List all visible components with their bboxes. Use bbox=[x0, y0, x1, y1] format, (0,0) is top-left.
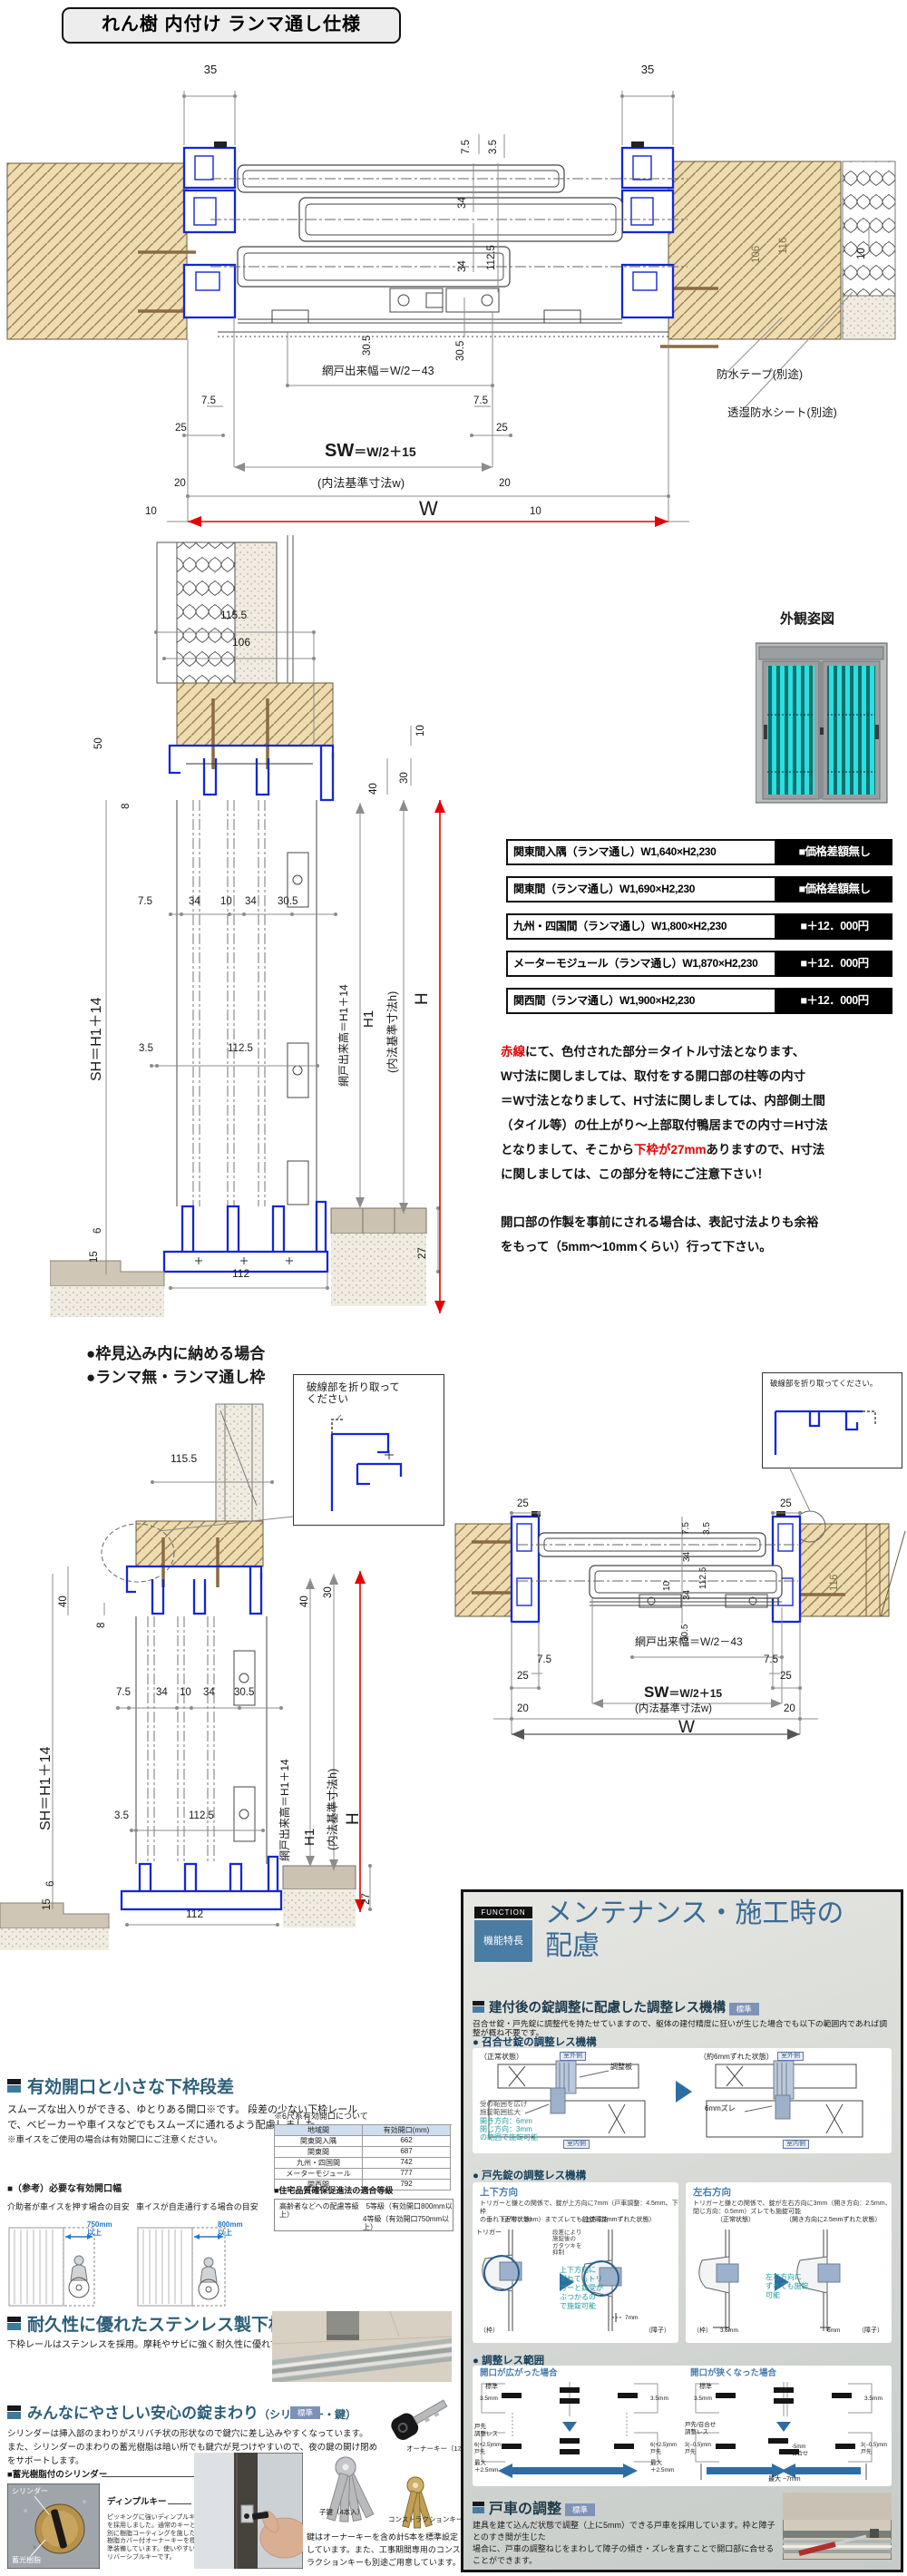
price-value: ■価格差額無し bbox=[776, 839, 892, 865]
sw-eq-label: ＝W/2＋15 bbox=[354, 444, 415, 459]
latch-horizontal-box: 左右方向 トリガーと鎌との関係で、錠が左右方向に3mm（開き方向：2.5mm、 … bbox=[686, 2182, 892, 2343]
teal-note: 上下方向に ずれてもトリ ガーと錠受が ぶつかるの で施錠可能 bbox=[560, 2266, 603, 2311]
dim-label: 7.5 bbox=[461, 140, 473, 154]
col-header: 地域間 bbox=[275, 2125, 363, 2136]
dim-label: 7.5 bbox=[537, 1654, 551, 1666]
owner-key-photo bbox=[388, 2391, 453, 2444]
dim-label: 10 bbox=[180, 1687, 191, 1699]
arrow-label: 800mm 以上 bbox=[218, 2220, 243, 2237]
dim-label: 10 bbox=[856, 248, 868, 259]
dim-label: 網戸出来幅＝W/2－43 bbox=[635, 1636, 743, 1649]
dim-label: SW＝W/2＋15 bbox=[325, 441, 416, 462]
case-title: 開口が広がった場合 bbox=[480, 2369, 558, 2379]
table-row: 関西間（ランマ通し）W1,900×H2,230■＋12．000円 bbox=[506, 988, 892, 1014]
zure-label: 6mmズレ bbox=[705, 2104, 736, 2113]
max-label: 最大 ＋2.5mm bbox=[474, 2460, 498, 2474]
dim-label: -5mm 召合せ bbox=[792, 2444, 808, 2458]
table-row: 九州・四国間742 bbox=[275, 2158, 452, 2169]
note-text: にて、色付された部分＝タイトル寸法となります、 bbox=[525, 1045, 805, 1059]
dim-label: 3.5 bbox=[488, 140, 500, 154]
dim-label: H1 bbox=[361, 1010, 376, 1028]
dim-label: 34 bbox=[682, 1552, 693, 1562]
std-label: 標準 bbox=[485, 2384, 498, 2391]
dim-label: 40 bbox=[299, 1595, 311, 1607]
dim-label: 115.5 bbox=[171, 1453, 197, 1466]
mid-vertical-section-drawing bbox=[0, 1361, 453, 1950]
dim-label: 112.5 bbox=[698, 1567, 709, 1589]
dim-label: 34 bbox=[682, 1590, 693, 1600]
dim-label: 25 bbox=[780, 1671, 792, 1683]
dim-label: 10 bbox=[415, 725, 427, 737]
section-icon bbox=[7, 2079, 21, 2093]
size-label: 九州・四国間（ランマ通し）W1,800×H2,230 bbox=[506, 913, 776, 940]
note-text: に関しましては、この部分を特にご注意下さい！ bbox=[501, 1167, 769, 1181]
dim-label: 27 bbox=[361, 1893, 373, 1905]
dim-label: 20 bbox=[784, 1703, 795, 1715]
notes-paragraph-1: 赤線にて、色付された部分＝タイトル寸法となります、 W寸法に関しましては、取付を… bbox=[501, 1039, 904, 1186]
dim-label: 7.5 bbox=[138, 896, 152, 908]
dim-label: 10 bbox=[220, 896, 232, 908]
dimple-key-label: ディンプルキー bbox=[107, 2498, 167, 2508]
dim-label: 34 bbox=[203, 1687, 215, 1699]
adjust-range-box: 開口が広がった場合 開口が狭くなった場合 bbox=[473, 2366, 892, 2486]
dim-label: 3.5 bbox=[702, 1522, 713, 1535]
section-icon bbox=[7, 2317, 21, 2330]
indoor-badge: 室内側 bbox=[783, 2140, 809, 2149]
dim-label: SH＝H1＋14 bbox=[89, 998, 105, 1081]
state-label: （開き方向に2.5mmずれた状態） bbox=[785, 2217, 881, 2224]
table-header-row: 地域間有効開口(mm) bbox=[275, 2125, 452, 2136]
dim-label: 3.5 bbox=[114, 1810, 129, 1822]
dim-label: 7mm bbox=[625, 2315, 638, 2321]
cylinder-sub-heading: ■蓄光樹脂付のシリンダー bbox=[7, 2471, 107, 2481]
direction-body: トリガーと鎌との関係で、錠が左右方向に3mm（開き方向：2.5mm、 閉じ方向：… bbox=[693, 2200, 892, 2217]
dim-label: SH＝H1＋14 bbox=[38, 1747, 54, 1830]
dim-label: 40 bbox=[368, 783, 380, 795]
vertical-section-drawing bbox=[50, 535, 467, 1351]
range-label: 戸先 調整レス bbox=[474, 2424, 498, 2438]
dim-label: 7.5 bbox=[116, 1687, 131, 1699]
leader-line bbox=[168, 2503, 191, 2504]
title-text: 建付後の錠調整に配慮した調整レス機構 bbox=[489, 2001, 726, 2015]
dim-label: 6(+2.5)mm 戸先 bbox=[650, 2442, 677, 2456]
size-label: メーターモジュール（ランマ通し）W1,870×H2,230 bbox=[506, 951, 776, 977]
dim-label: 25 bbox=[517, 1671, 529, 1683]
dim-label: 30.5 bbox=[278, 896, 297, 908]
dim-label: 3.5mm bbox=[694, 2395, 712, 2402]
annotation-waterproof-tape: 防水テープ(別途) bbox=[717, 368, 803, 381]
dim-label: 網戸出来高＝H1＋14 bbox=[279, 1759, 292, 1861]
dim-label: 6mm bbox=[827, 2327, 840, 2334]
dim-label: 10 bbox=[530, 506, 541, 518]
dim-label: 116 bbox=[829, 1575, 841, 1591]
price-value: ■＋12．000円 bbox=[776, 913, 892, 940]
state-label: （正常状態） bbox=[717, 2217, 755, 2224]
note-text: となりまして、そこから bbox=[501, 1143, 634, 1156]
dim-label: 10 bbox=[145, 506, 157, 518]
red-text: 赤線 bbox=[501, 1045, 525, 1059]
dim-label: 15 bbox=[42, 1898, 54, 1910]
section-title-opening: 有効開口と小さな下枠段差 bbox=[27, 2073, 234, 2098]
indoor-badge: 室内側 bbox=[563, 2140, 590, 2149]
meeting-lock-box: （正常状態） 室外側 調整板 受の範囲を広げ 施錠範囲拡大 開き方向：6mm 閉… bbox=[473, 2048, 892, 2153]
cell: 687 bbox=[363, 2147, 451, 2158]
dim-label: 40 bbox=[58, 1595, 70, 1607]
dim-label: 3.5mm bbox=[650, 2395, 668, 2402]
dimension-notes: 赤線にて、色付された部分＝タイトル寸法となります、 W寸法に関しましては、取付を… bbox=[501, 1039, 904, 1259]
dim-label: 20 bbox=[174, 478, 186, 490]
dim-label: 6 bbox=[93, 1228, 104, 1234]
dim-label: 34 bbox=[156, 1687, 168, 1699]
dim-label: 112.5 bbox=[228, 1043, 253, 1055]
cell: メーターモジュール bbox=[275, 2169, 363, 2180]
key-label: コンストラクションキー bbox=[388, 2516, 463, 2524]
max-label: 最大 −7mm bbox=[768, 2476, 801, 2483]
dim-label: 25 bbox=[780, 1498, 792, 1510]
teal-note: 開き方向：6mm 閉じ方向：3mm の範囲で施錠可能 bbox=[480, 2117, 538, 2142]
table-row: 関東間687 bbox=[275, 2147, 452, 2158]
dim-label: 34 bbox=[189, 896, 200, 908]
table-row: 関東間（ランマ通し）W1,690×H2,230■価格差額無し bbox=[506, 876, 892, 903]
adjust-range-diagrams bbox=[473, 2380, 892, 2486]
dim-label: 112 bbox=[232, 1268, 249, 1281]
panel-section-1-title: 建付後の錠調整に配慮した調整レス機構 標準 bbox=[489, 1997, 759, 2016]
opening-table: 地域間有効開口(mm) 関東間入隅662 関東間687 九州・四国間742 メー… bbox=[274, 2124, 452, 2191]
dim-label: 網戸出来幅＝W/2－43 bbox=[322, 365, 434, 377]
dim-label: 3.5mm bbox=[720, 2327, 738, 2334]
note-text: W寸法に関しましては、取付をする開口部の柱等の内寸 bbox=[501, 1069, 805, 1083]
spec-sheet-page: れん樹 内付け ランマ通し仕様 bbox=[0, 0, 907, 2576]
plan-section-drawing bbox=[0, 54, 907, 535]
page-title: れん樹 内付け ランマ通し仕様 bbox=[62, 7, 401, 44]
dim-label: 25 bbox=[517, 1498, 529, 1510]
dim-label: 112 bbox=[186, 1908, 203, 1921]
dim-label: 6 bbox=[45, 1881, 57, 1887]
roller-photo bbox=[783, 2493, 892, 2560]
dim-label: (内法基準寸法w) bbox=[317, 477, 405, 491]
panel-title: メンテナンス・施工時の 配慮 bbox=[545, 1898, 844, 1963]
dim-label: 3(−0.5)mm 戸先 bbox=[861, 2442, 887, 2456]
price-table: 関東間入隅（ランマ通し）W1,640×H2,230■価格差額無し 関東間（ランマ… bbox=[506, 839, 892, 1025]
trigger-label: トリガー bbox=[476, 2230, 502, 2237]
price-value: ■＋12．000円 bbox=[776, 988, 892, 1014]
table-row: 関東間入隅662 bbox=[275, 2136, 452, 2147]
panel-bullet-1: ● 召合せ錠の調整レス機構 bbox=[473, 2034, 597, 2049]
table-row: 関東間入隅（ランマ通し）W1,640×H2,230■価格差額無し bbox=[506, 839, 892, 865]
section-title-stainless: 耐久性に優れたステンレス製下枠 bbox=[27, 2311, 286, 2336]
notes-paragraph-2: 開口部の作製を事前にされる場合は、表記寸法よりも余裕 をもって（5mm～10mm… bbox=[501, 1210, 904, 1259]
dim-label: 27 bbox=[417, 1247, 429, 1259]
stainless-sill-photo bbox=[272, 2311, 452, 2382]
dim-label: 15 bbox=[89, 1251, 101, 1263]
dim-label: 30 bbox=[323, 1586, 335, 1598]
dim-label: 115.5 bbox=[220, 610, 247, 622]
dim-label: 3.5mm bbox=[480, 2395, 498, 2402]
section-icon bbox=[473, 2001, 484, 2013]
panel-title-line2: 配慮 bbox=[545, 1931, 600, 1961]
title-text: 戸車の調整 bbox=[489, 2502, 561, 2517]
grade-box: 高齢者などへの配慮等級 5等級（有効開口800mm以上） 4等級（有効開口750… bbox=[274, 2199, 453, 2231]
dim-label: 30.5 bbox=[234, 1687, 254, 1699]
direction-title: 左右方向 bbox=[693, 2187, 731, 2198]
dim-label: 20 bbox=[499, 478, 511, 490]
col-header: 有効開口(mm) bbox=[363, 2125, 451, 2136]
sw-eq-label: ＝W/2＋15 bbox=[668, 1687, 722, 1700]
function-tag: FUNCTION bbox=[474, 1907, 532, 1918]
section-note: ※車イスをご使用の場合は有効開口にご注意ください。 bbox=[7, 2136, 222, 2146]
case-title: 開口が狭くなった場合 bbox=[690, 2369, 776, 2379]
dim-label: 106 bbox=[751, 246, 763, 263]
state-label: （約6mmずれた状態） bbox=[699, 2053, 774, 2061]
wheelchair-figure-self bbox=[136, 2217, 227, 2311]
red-text: 下枠が27mm bbox=[634, 1143, 707, 1156]
dim-label: 8 bbox=[121, 804, 132, 809]
appearance-figure-title: 外観姿図 bbox=[780, 611, 834, 627]
standard-badge: 標準 bbox=[565, 2503, 595, 2516]
dim-label: 35 bbox=[629, 63, 666, 77]
hand-key-photo bbox=[194, 2453, 303, 2569]
dim-label: 3(−0.5)mm 戸先 bbox=[685, 2442, 711, 2456]
dim-label: 7.5 bbox=[473, 395, 488, 407]
dim-label: 112.5 bbox=[486, 245, 498, 270]
shoji-label: （障子） bbox=[858, 2327, 883, 2335]
dim-label: 106 bbox=[232, 637, 250, 649]
dim-label: (内法基準寸法h) bbox=[386, 991, 399, 1073]
frame-label: （枠） bbox=[693, 2327, 712, 2335]
note-text: （タイル等）の仕上がり～上部取付鴨居までの内寸＝H寸法 bbox=[501, 1118, 828, 1132]
state-label: （正常状態） bbox=[498, 2217, 536, 2224]
dim-label: 35 bbox=[192, 63, 229, 77]
title-text: みんなにやさしい安心の錠まわり bbox=[27, 2405, 258, 2422]
section-icon bbox=[473, 2502, 484, 2513]
dim-label: 34 bbox=[457, 260, 469, 272]
dim-label: 30 bbox=[399, 772, 411, 784]
standard-badge: 標準 bbox=[729, 2003, 759, 2015]
teal-note: 左右方向に ずれても施錠 可能 bbox=[766, 2273, 808, 2300]
panel-section-2-title: 戸車の調整 標準 bbox=[489, 2496, 595, 2518]
dim-label: W bbox=[678, 1718, 695, 1738]
dim-label: 10 bbox=[662, 1581, 673, 1591]
arrow-label: 750mm 以上 bbox=[87, 2220, 112, 2237]
cell: 662 bbox=[363, 2136, 451, 2147]
size-label: 関東間入隅（ランマ通し）W1,640×H2,230 bbox=[506, 839, 776, 865]
dim-label: 3.5 bbox=[139, 1043, 153, 1055]
price-value: ■＋12．000円 bbox=[776, 951, 892, 977]
max-label: 最大 ＋2.5mm bbox=[650, 2460, 674, 2474]
size-label: 関東間（ランマ通し）W1,690×H2,230 bbox=[506, 876, 776, 903]
latch-vertical-box: 上下方向 トリガーと鎌との関係で、錠が上方向に7mm（戸車調整：4.5mm、下枠… bbox=[473, 2182, 678, 2343]
dim-label: 20 bbox=[517, 1703, 529, 1715]
dim-label: SW＝W/2＋15 bbox=[644, 1683, 722, 1702]
roller-body: 建具を建て込んだ状態で調整（上に5mm）できる戸車を採用しています。枠と障子との… bbox=[473, 2520, 777, 2567]
dim-label: 25 bbox=[496, 423, 508, 434]
range-label: 戸先/召合せ 調整レス bbox=[685, 2422, 716, 2436]
dim-label: (内法基準寸法w) bbox=[635, 1703, 712, 1715]
keys-note: 鍵はオーナーキーを含め計5本を標準設定 しています。また、工事期間専用のコンスト… bbox=[307, 2531, 469, 2569]
frame-label: （枠） bbox=[480, 2327, 499, 2335]
dim-label: 30.5 bbox=[362, 336, 374, 356]
table-row: 九州・四国間（ランマ通し）W1,800×H2,230■＋12．000円 bbox=[506, 913, 892, 940]
ref-heading: ■（参考）必要な有効開口幅 bbox=[7, 2184, 122, 2195]
state-label: （正常状態） bbox=[480, 2053, 523, 2061]
dim-label: (内法基準寸法h) bbox=[327, 1769, 339, 1850]
sw-label: SW bbox=[644, 1683, 668, 1701]
dim-label: 7.5 bbox=[764, 1654, 778, 1666]
function-panel: FUNCTION 機能特長 メンテナンス・施工時の 配慮 建付後の錠調整に配慮し… bbox=[461, 1889, 903, 2572]
dim-label: 7.5 bbox=[681, 1522, 692, 1535]
cell: 関東間入隅 bbox=[275, 2136, 363, 2147]
dim-label: H1 bbox=[302, 1829, 317, 1846]
std-label: 標準 bbox=[699, 2384, 712, 2391]
note-text: ＝W寸法となりまして、H寸法に関しましては、内部側土間 bbox=[501, 1094, 825, 1107]
dim-label: 8 bbox=[96, 1623, 108, 1628]
sw-label: SW bbox=[325, 441, 354, 461]
opening-table-title: ※6尺系有効開口について bbox=[274, 2112, 368, 2121]
wheelchair-figure-assisted bbox=[7, 2217, 98, 2311]
feature-tag: 機能特長 bbox=[474, 1920, 532, 1962]
note-text: ありますので、H寸法 bbox=[707, 1143, 825, 1156]
panel-title-line1: メンテナンス・施工時の bbox=[545, 1898, 844, 1928]
standard-badge: 標準 bbox=[290, 2406, 320, 2419]
dim-label: H bbox=[344, 1812, 364, 1825]
figure-caption: 車イスが自走通行する場合の目安 bbox=[136, 2202, 258, 2211]
gata-label: 段差により 施錠後の ガタツキを 抑制 bbox=[552, 2230, 582, 2257]
dim-label: 34 bbox=[457, 197, 469, 209]
photo-label: 蓄光樹脂 bbox=[12, 2556, 41, 2564]
photo-label: シリンダー bbox=[12, 2487, 48, 2495]
cell: 742 bbox=[363, 2158, 451, 2169]
dim-label: 7.5 bbox=[201, 395, 216, 407]
grade-title: ■住宅品質確保促進法の適合等級 bbox=[274, 2186, 393, 2195]
range-label: 受の範囲を広げ 施錠範囲拡大 bbox=[480, 2101, 528, 2116]
outdoor-badge: 室外側 bbox=[777, 2052, 804, 2061]
cell: 関東間 bbox=[275, 2147, 363, 2158]
cell: 777 bbox=[363, 2169, 451, 2180]
appearance-figure bbox=[756, 638, 889, 805]
table-row: メーターモジュール（ランマ通し）W1,870×H2,230■＋12．000円 bbox=[506, 951, 892, 977]
shoji-label: （障子） bbox=[645, 2327, 670, 2335]
dim-label: 3.5mm bbox=[864, 2395, 883, 2402]
dimple-key-body: ピッキングに強いディンプルキー を採用しました。通常のキーとは 別に樹脂コーティ… bbox=[107, 2514, 202, 2562]
size-label: 関西間（ランマ通し）W1,900×H2,230 bbox=[506, 988, 776, 1014]
plate-label: 調整板 bbox=[610, 2063, 632, 2071]
dim-label: W bbox=[419, 497, 438, 520]
dim-label: 34 bbox=[245, 896, 257, 908]
figure-caption: 介助者が車イスを押す場合の目安 bbox=[7, 2202, 130, 2211]
dim-label: 30.5 bbox=[455, 341, 467, 361]
price-value: ■価格差額無し bbox=[776, 876, 892, 903]
panel-bullet-2: ● 戸先錠の調整レス機構 bbox=[473, 2168, 586, 2182]
dim-label: 6(+2.5)mm 戸先 bbox=[474, 2442, 501, 2456]
dim-label: 112.5 bbox=[189, 1810, 214, 1822]
annotation-waterproof-sheet: 透湿防水シート(別途) bbox=[727, 406, 837, 419]
direction-title: 上下方向 bbox=[480, 2187, 518, 2198]
key-label: 子鍵（4本入） bbox=[319, 2509, 364, 2517]
outdoor-badge: 室外側 bbox=[560, 2052, 586, 2061]
dim-label: 116 bbox=[778, 238, 790, 254]
dim-label: 網戸出来高＝H1＋14 bbox=[338, 984, 351, 1087]
dim-label: 25 bbox=[175, 423, 187, 434]
dim-label: H bbox=[413, 992, 433, 1005]
section-body: 下枠レールはステンレスを採用。摩耗やサビに強く耐久性に優れています。 bbox=[7, 2340, 315, 2351]
state-label: （上方向7mmずれた状態） bbox=[578, 2217, 656, 2224]
cell: 九州・四国間 bbox=[275, 2158, 363, 2169]
grade-line: 4等級（有効開口750mm以上） bbox=[363, 2215, 453, 2231]
table-row: メーターモジュール777 bbox=[275, 2169, 452, 2180]
section-icon bbox=[7, 2405, 21, 2419]
dim-label: 50 bbox=[93, 737, 105, 749]
